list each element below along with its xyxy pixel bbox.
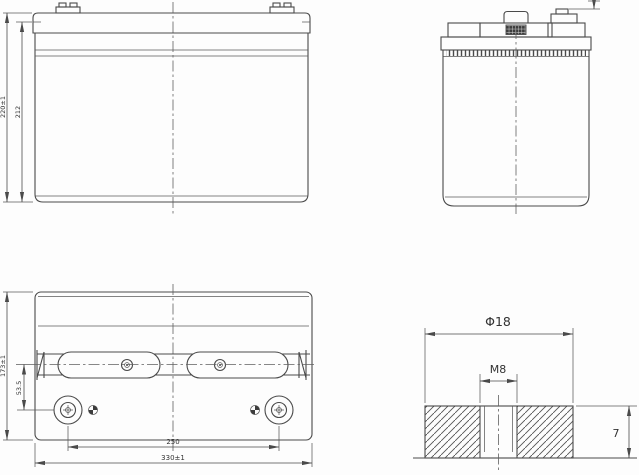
front-view: 220±1 212 [0,2,310,215]
side-terminal-cap [556,9,568,14]
side-terminal-block [548,23,585,37]
terminal-circle-right [265,396,293,424]
front-body-outline [35,33,308,202]
dim-label-thread-size: M8 [490,363,507,376]
terminal-circle-left [54,396,82,424]
dim-label-terminal-spacing: 250 [166,438,179,446]
front-lid [33,13,310,33]
side-terminal-base [551,14,577,23]
top-view-dimensions: 173±1 53.5 250 330±1 [0,292,312,467]
terminal-height-dimension [569,0,600,9]
dim-label-depth: 173±1 [0,355,7,377]
handle-right [187,352,288,378]
top-view: 173±1 53.5 250 330±1 [0,284,316,467]
dim-label-terminal-height: 7 [613,427,620,440]
vent-marker-left [89,406,98,415]
terminal-detail: Φ18 M8 7 [413,314,637,472]
dim-label-terminal-diameter: Φ18 [485,314,511,329]
side-handle-hump [504,12,528,24]
terminal-post-right [270,3,294,13]
technical-drawing-page: 220±1 212 [0,0,639,475]
side-lid-step [448,23,480,37]
terminal-post-left [56,3,80,13]
dim-label-case-height: 212 [14,106,22,118]
side-view [441,0,600,214]
hatch-right [517,406,573,458]
dim-label-overall-height: 220±1 [0,96,7,118]
front-dimensions: 220±1 212 [0,13,33,202]
battery-drawing-svg: 220±1 212 [0,0,639,475]
handle-left [58,352,160,378]
dim-label-overall-length: 330±1 [161,454,185,462]
hatch-left [425,406,480,458]
dim-label-terminal-offset: 53.5 [15,381,23,395]
vent-marker-right [251,406,260,415]
